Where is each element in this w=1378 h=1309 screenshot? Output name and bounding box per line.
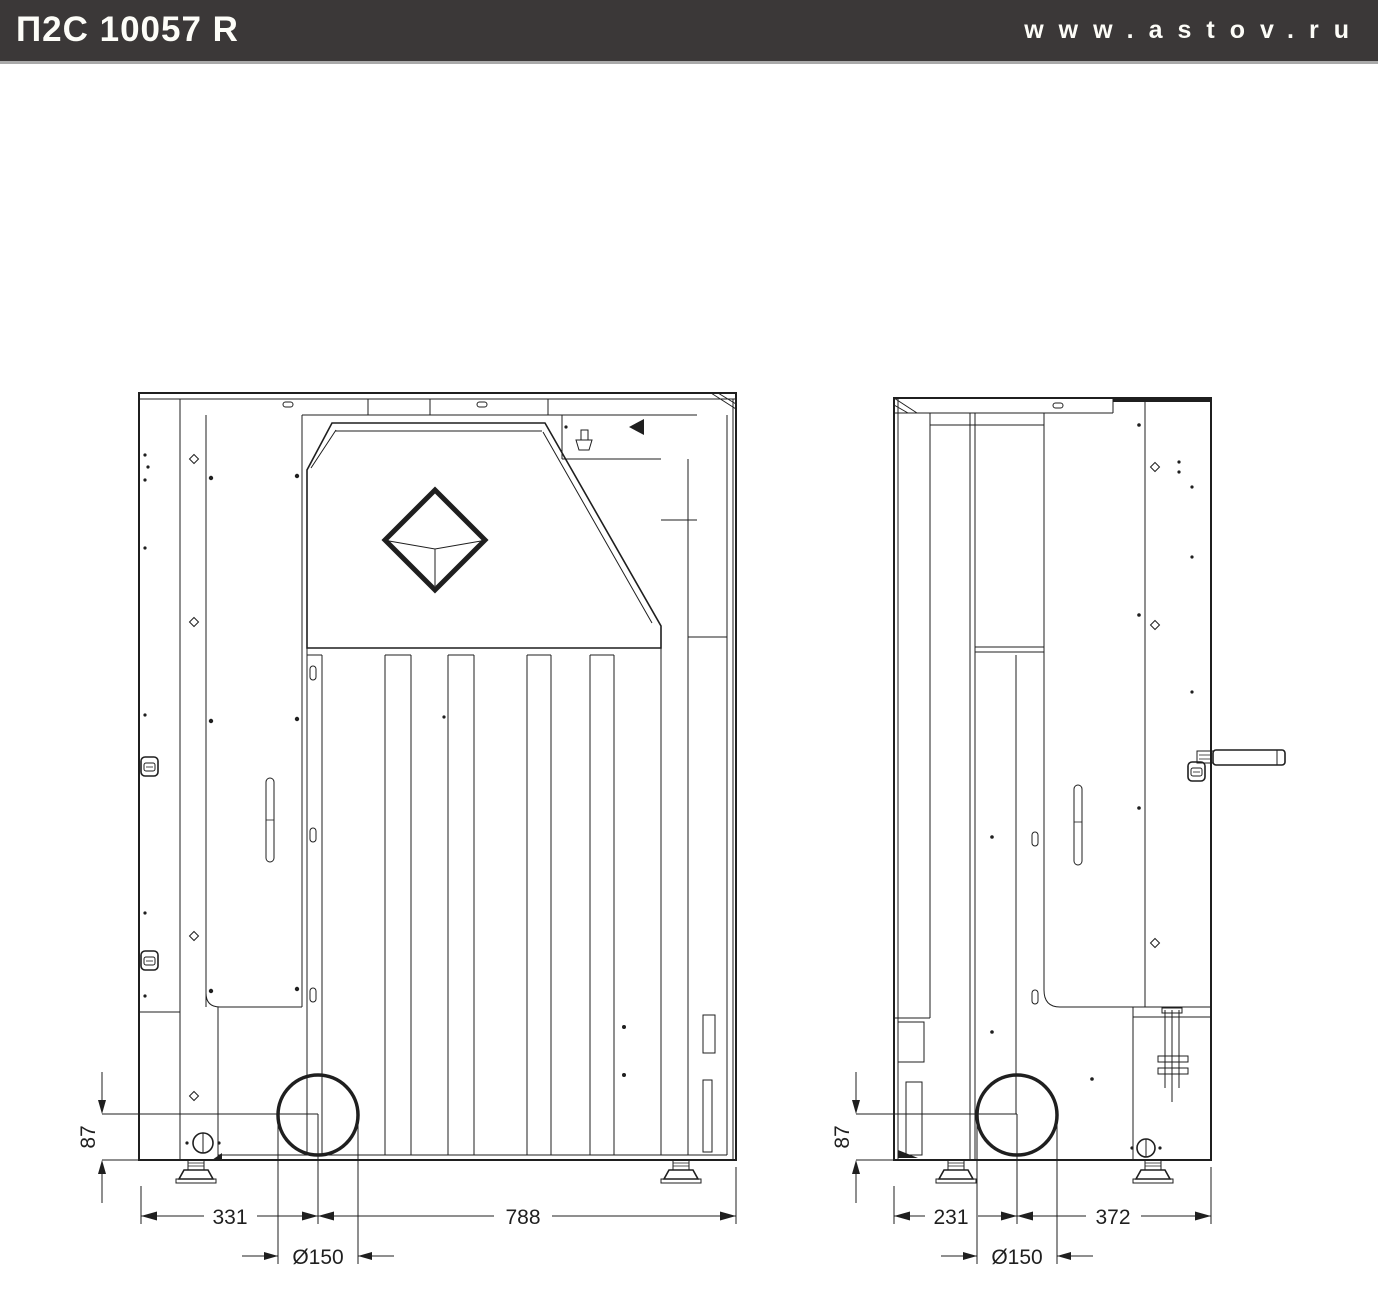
- leveling-foot-icon: [176, 1160, 216, 1183]
- latch-icon: [141, 757, 158, 776]
- rear-flue-diameter-label: Ø150: [292, 1246, 343, 1269]
- side-right-width-label: 372: [1095, 1206, 1130, 1229]
- side-view-cabinet-outline: [894, 397, 1211, 1160]
- technical-drawing-canvas: 87 331 788 Ø150: [0, 0, 1378, 1309]
- side-flue-height-label: 87: [831, 1125, 854, 1148]
- side-lower-compartment: [898, 1022, 924, 1158]
- side-view-drawing: 87 231 372 Ø150: [831, 397, 1285, 1269]
- rear-fasteners-and-holes: [141, 453, 626, 1100]
- handle-bar-icon: [1213, 750, 1285, 765]
- latch-icon: [1188, 762, 1205, 781]
- side-holes-and-fasteners: [990, 423, 1193, 1081]
- rear-upper-right-detail: [562, 415, 727, 637]
- drawing-sheet: П2С 10057 R www.astov.ru: [0, 0, 1378, 1309]
- position-arrow-icon: [629, 419, 644, 435]
- leveling-foot-icon: [936, 1160, 976, 1183]
- rear-base-section: [102, 1007, 715, 1183]
- rear-dim-331-788: 331 788: [141, 1114, 736, 1229]
- rear-view-drawing: 87 331 788 Ø150: [77, 393, 736, 1269]
- latch-icon: [141, 951, 158, 970]
- rear-right-width-label: 788: [505, 1206, 540, 1229]
- door-handle: [1188, 750, 1285, 781]
- side-flue-diameter-label: Ø150: [991, 1246, 1042, 1269]
- leveling-foot-icon: [661, 1160, 701, 1183]
- brand-diamond-emblem: [385, 490, 485, 590]
- side-left-width-label: 231: [933, 1206, 968, 1229]
- rear-left-width-label: 331: [212, 1206, 247, 1229]
- rear-view-cabinet-outline: [139, 393, 736, 1160]
- leveling-foot-icon: [1133, 1160, 1173, 1183]
- rear-flue-height-label: 87: [77, 1125, 100, 1148]
- side-dim-87: 87: [831, 1072, 1017, 1203]
- rear-slat-panel: [218, 399, 733, 1160]
- side-bracket-assembly: [1158, 1008, 1188, 1102]
